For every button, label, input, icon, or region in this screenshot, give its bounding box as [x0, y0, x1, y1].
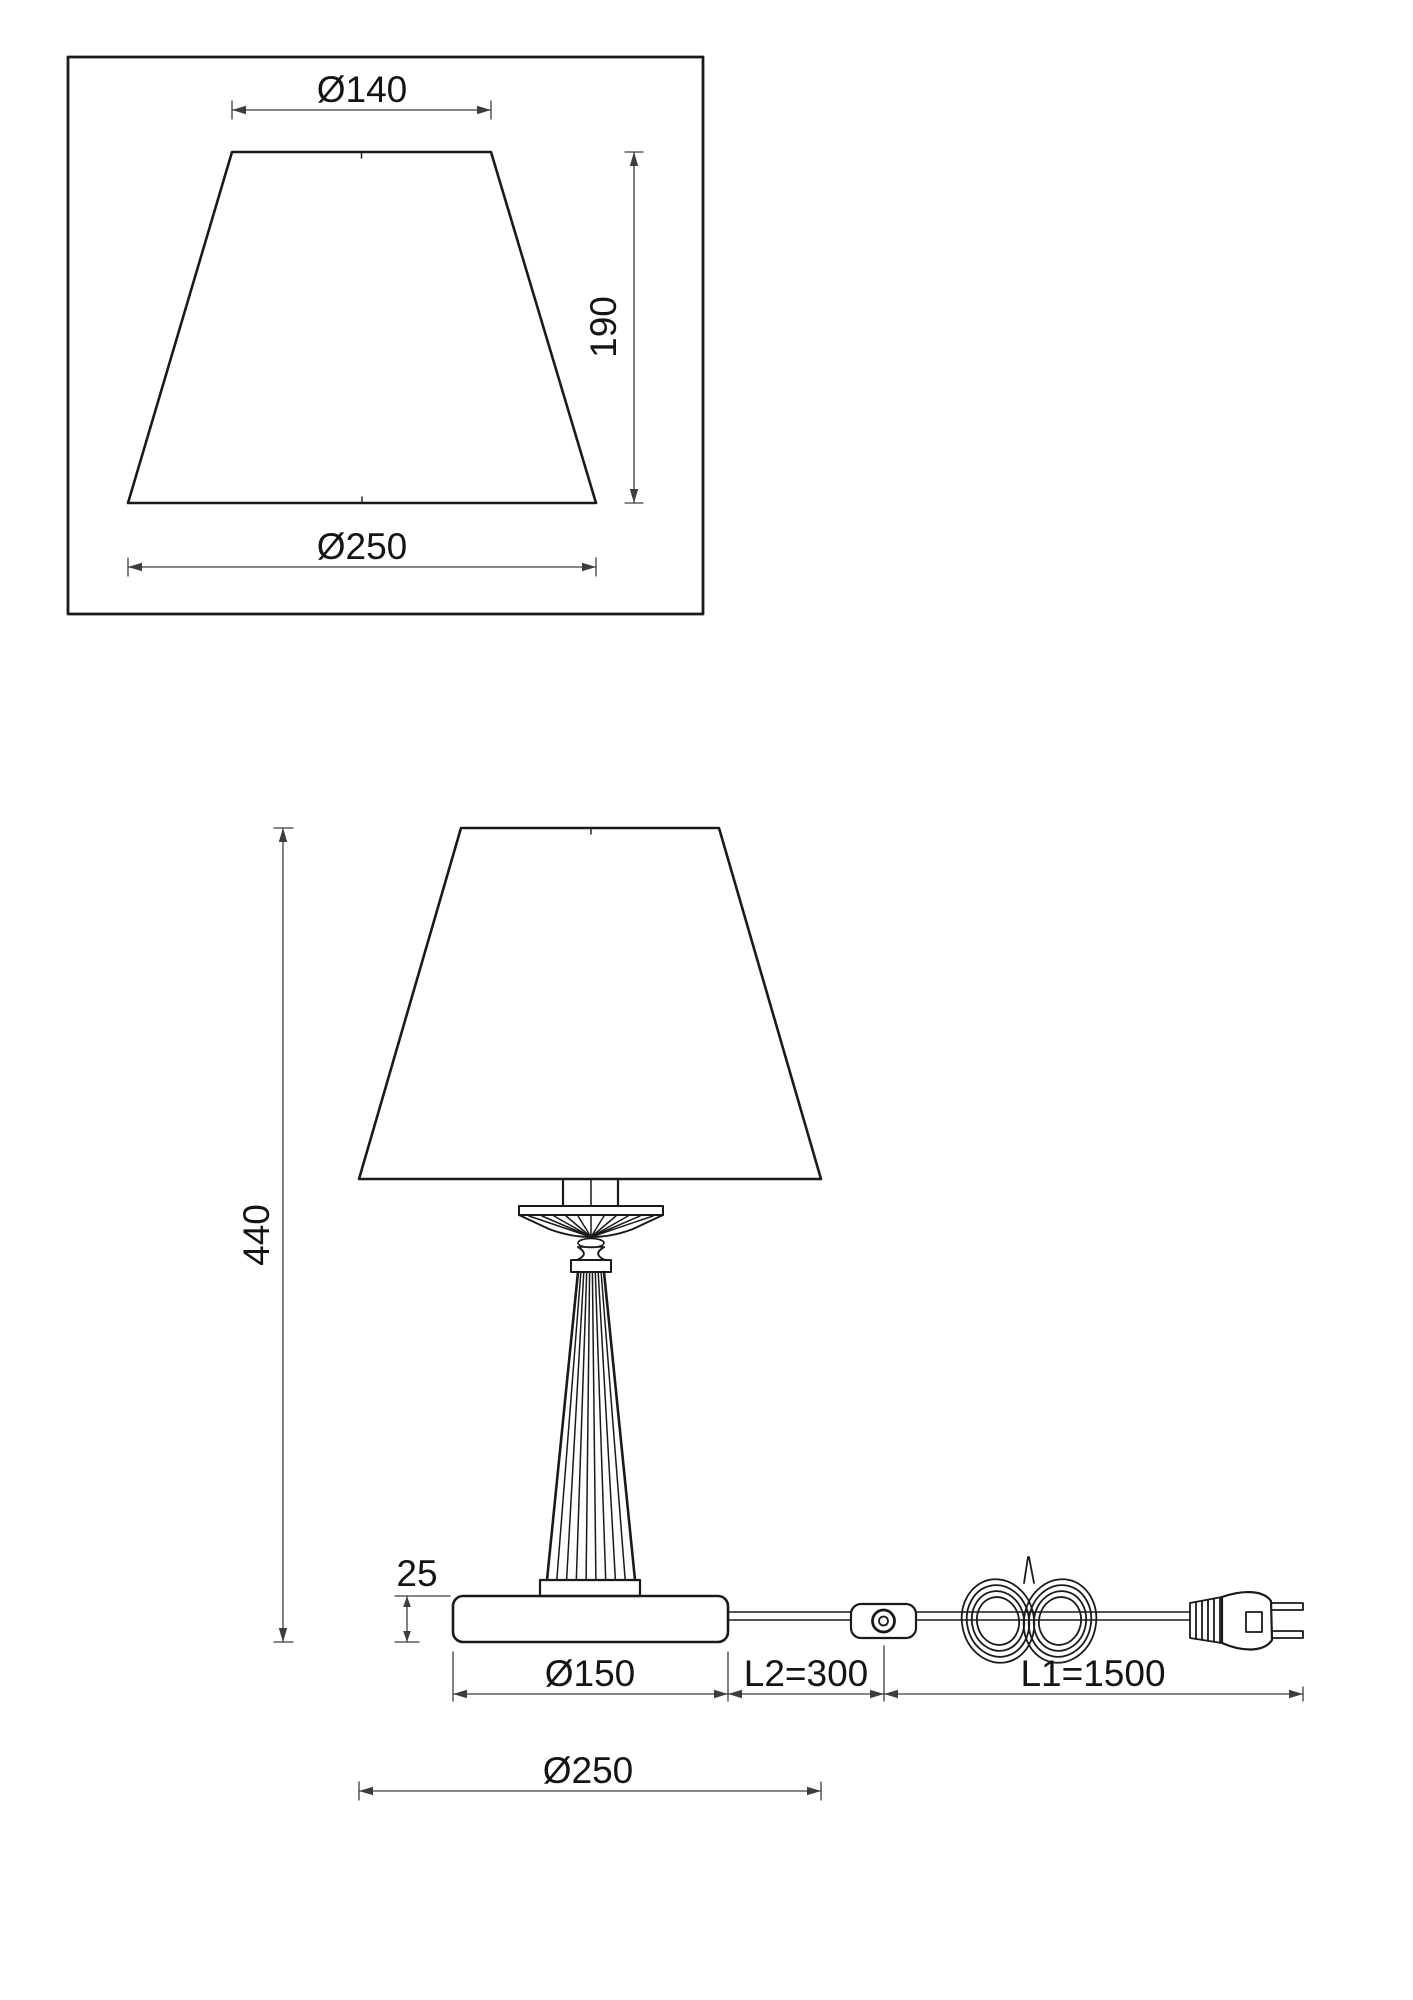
lamp-elevation-view: [359, 828, 1303, 1670]
plug-bellows: [1190, 1597, 1222, 1643]
inline-switch: [851, 1604, 916, 1638]
label-total-height: 440: [236, 1204, 277, 1266]
label-detail-bottom-diameter: Ø250: [317, 526, 408, 567]
cord-base-to-switch: [728, 1612, 851, 1620]
label-base-height: 25: [396, 1553, 437, 1594]
plate-radial-ribs: [529, 1215, 653, 1237]
dim-base-height: [395, 1596, 450, 1642]
power-plug: [1222, 1592, 1303, 1649]
detail-shade-center-ticks: [362, 152, 363, 503]
column-plinth: [540, 1580, 640, 1596]
label-cord-length: L1=1500: [1020, 1653, 1165, 1694]
plug-prongs: [1272, 1603, 1303, 1638]
lamp-dimension-drawing: Ø140 190 Ø250 440 25 Ø150 L2=300 L1=1500…: [0, 0, 1413, 2000]
fluted-column: [540, 1272, 640, 1596]
detail-shade-trapezoid: [128, 152, 596, 503]
dim-detail-height: [625, 152, 643, 503]
socket-sleeve: [563, 1179, 618, 1206]
technical-drawing-page: Ø140 190 Ø250 440 25 Ø150 L2=300 L1=1500…: [0, 0, 1413, 2000]
coil-tie: [1024, 1557, 1034, 1583]
column-flute-lines: [557, 1272, 625, 1580]
cord-switch-to-plug: [916, 1612, 1190, 1620]
label-base-diameter: Ø150: [545, 1653, 636, 1694]
lamp-shade: [359, 828, 821, 1179]
power-cord: [728, 1612, 1190, 1620]
switch-button: [873, 1610, 895, 1632]
label-switch-distance: L2=300: [744, 1653, 869, 1694]
dimension-labels: Ø140 190 Ø250 440 25 Ø150 L2=300 L1=1500…: [236, 69, 1166, 1791]
column-neck: [571, 1247, 611, 1272]
label-shade-diameter: Ø250: [543, 1750, 634, 1791]
bobeche-plate: [519, 1206, 663, 1248]
label-detail-height: 190: [583, 296, 624, 358]
label-detail-top-diameter: Ø140: [317, 69, 408, 110]
lamp-base: [453, 1596, 728, 1642]
dimension-lines: [128, 101, 1303, 1800]
plug-body: [1222, 1592, 1272, 1649]
column-collar: [571, 1260, 611, 1272]
plug-face-notch: [1246, 1612, 1262, 1632]
object-lines: [68, 57, 1303, 1670]
